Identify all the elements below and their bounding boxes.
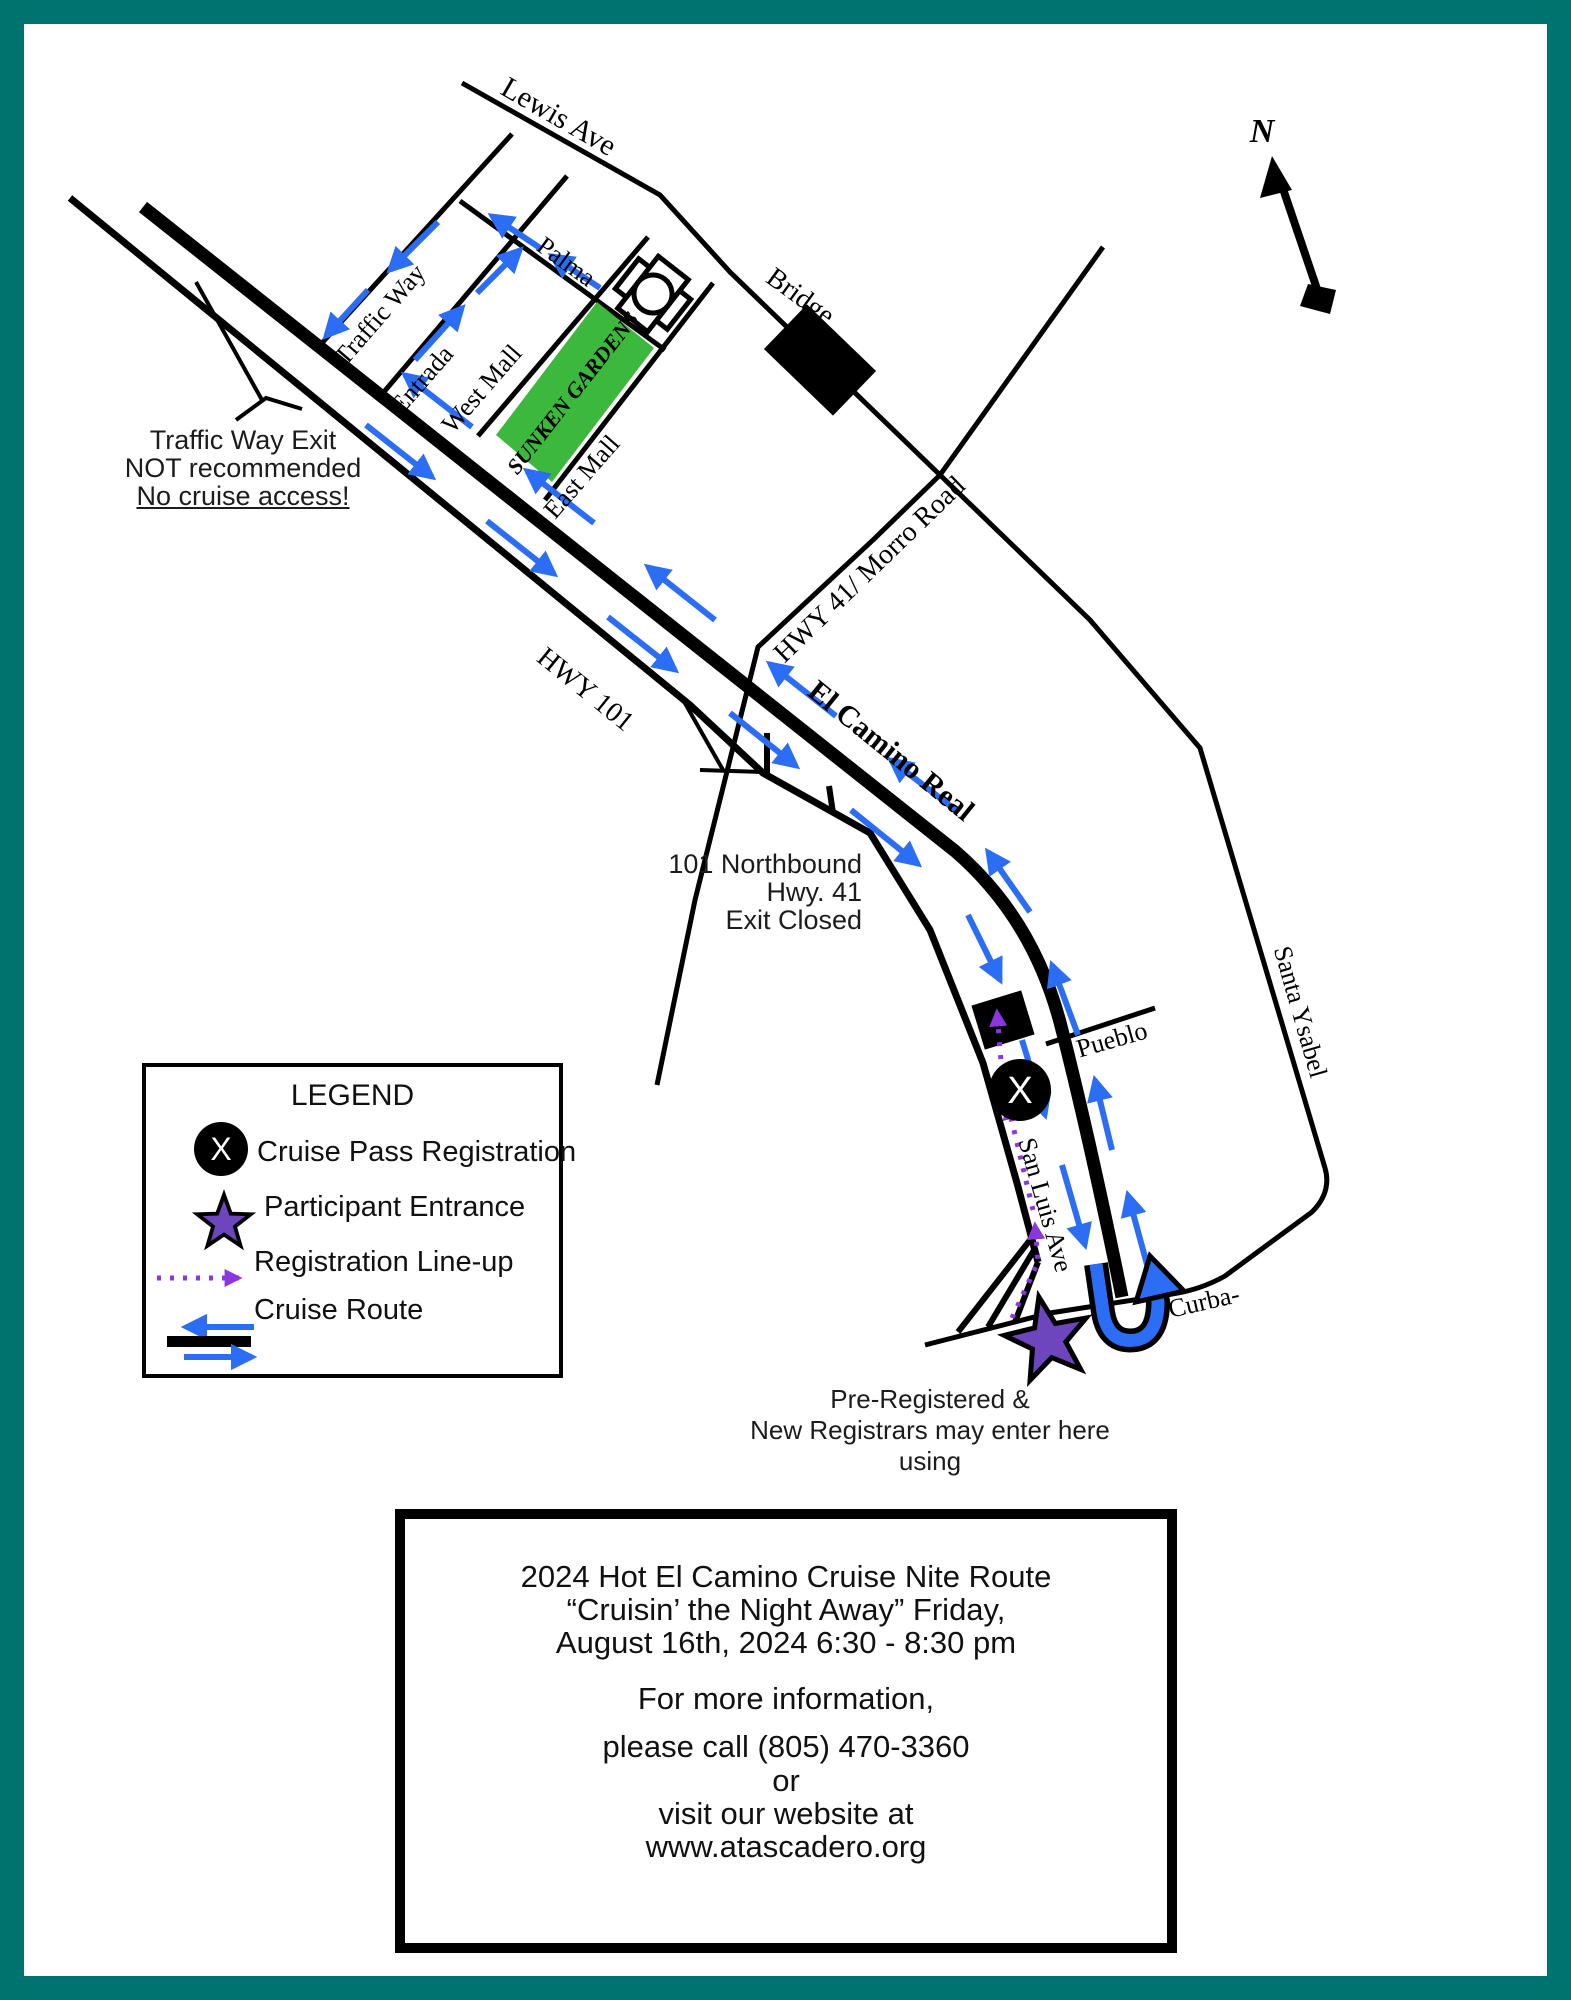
note-line: Pre-Registered &: [700, 1384, 1160, 1415]
note-line: NOT recommended: [90, 454, 396, 482]
label-lewis-ave: Lewis Ave: [496, 71, 622, 163]
info-website: www.atascadero.org: [405, 1829, 1167, 1865]
event-info-box: 2024 Hot El Camino Cruise Nite Route “Cr…: [395, 1509, 1177, 1953]
north-compass: N: [1249, 113, 1336, 314]
legend-box: LEGEND X Cruise Pass Registration Partic…: [142, 1063, 563, 1378]
note-line: Hwy. 41: [600, 878, 862, 906]
registration-x-icon: X: [1007, 1070, 1032, 1112]
note-line: 101 Northbound: [600, 850, 862, 878]
flyer-page: X N Lewis Ave Palma Traffic Way Entrada …: [0, 0, 1571, 2000]
north-label: N: [1249, 113, 1276, 150]
note-participant-entrance: Pre-Registered & New Registrars may ente…: [700, 1384, 1160, 1477]
info-title-line: “Cruisin’ the Night Away” Friday,: [405, 1592, 1167, 1628]
info-body-line: visit our website at: [405, 1796, 1167, 1832]
connector-stub-2: [829, 786, 833, 813]
info-body-line: or: [405, 1763, 1167, 1799]
participant-entrance-star-icon: [998, 1288, 1096, 1383]
compass-tail-icon: [1300, 284, 1336, 314]
legend-star-icon: [197, 1195, 251, 1246]
label-hwy-41-morro: HWY 41/ Morro Road: [768, 471, 972, 669]
legend-item-cruise-pass: Cruise Pass Registration: [257, 1136, 576, 1169]
note-line: using: [700, 1446, 1160, 1477]
info-title-line: August 16th, 2024 6:30 - 8:30 pm: [405, 1625, 1167, 1661]
info-body-line: For more information,: [405, 1681, 1167, 1717]
legend-item-participant-entrance: Participant Entrance: [264, 1191, 525, 1224]
ramp-traffic-way-gore: [236, 398, 302, 420]
info-body-line: please call (805) 470-3360: [405, 1729, 1167, 1765]
note-traffic-way-exit: Traffic Way Exit NOT recommended No crui…: [90, 426, 396, 510]
note-line: No cruise access!: [90, 482, 396, 510]
legend-registration-x-icon: X: [210, 1131, 231, 1167]
label-hwy-101: HWY 101: [531, 641, 640, 737]
cruise-pass-registration-marker: X: [989, 1059, 1051, 1121]
note-exit-closed: 101 Northbound Hwy. 41 Exit Closed: [600, 850, 862, 934]
info-title-line: 2024 Hot El Camino Cruise Nite Route: [405, 1559, 1167, 1595]
note-line: Exit Closed: [600, 906, 862, 934]
ramp-interchange-base: [700, 770, 763, 772]
legend-item-registration-lineup: Registration Line-up: [254, 1246, 514, 1279]
note-line: Traffic Way Exit: [90, 426, 396, 454]
legend-route-bar-icon: [167, 1336, 251, 1347]
note-line: New Registrars may enter here: [700, 1415, 1160, 1446]
legend-item-cruise-route: Cruise Route: [254, 1294, 423, 1327]
